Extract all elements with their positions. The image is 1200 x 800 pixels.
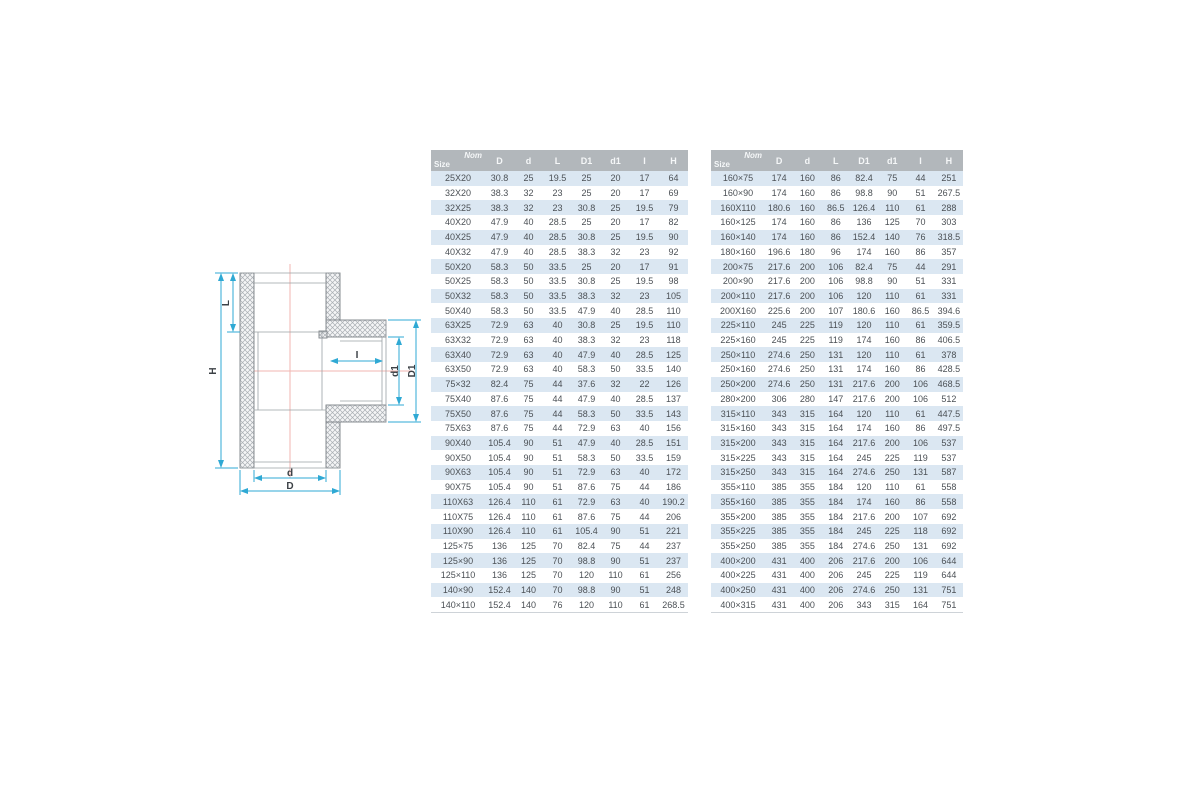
value-cell: 120 [572,597,601,612]
table-row: 250×160274.625013117416086428.5 [711,362,963,377]
value-cell: 20 [601,186,630,201]
value-cell: 245 [765,333,793,348]
value-cell: 125 [878,215,906,230]
table-row: 32X2038.3322325201769 [431,186,688,201]
value-cell: 106 [906,392,934,407]
table-row: 75X6387.6754472.96340156 [431,421,688,436]
column-header-H: H [659,150,688,171]
value-cell: 250 [878,465,906,480]
value-cell: 58.3 [485,274,514,289]
value-cell: 87.6 [485,421,514,436]
dimension-table-left: NomSizeDdLD1d1IH25X2030.82519.5252017643… [431,150,688,613]
table-row: 180×160196.61809617416086357 [711,245,963,260]
value-cell: 140 [514,597,543,612]
value-cell: 200 [878,377,906,392]
value-cell: 174 [850,494,878,509]
value-cell: 51 [906,186,934,201]
value-cell: 400 [793,597,821,612]
value-cell: 118 [659,333,688,348]
value-cell: 160 [793,215,821,230]
value-cell: 61 [630,597,659,612]
table-row: 315×16034331516417416086497.5 [711,421,963,436]
value-cell: 92 [659,245,688,260]
value-cell: 105.4 [572,524,601,539]
table-row: 355×200385355184217.6200107692 [711,509,963,524]
value-cell: 61 [906,289,934,304]
value-cell: 131 [906,583,934,598]
value-cell: 61 [543,509,572,524]
value-cell: 164 [822,450,850,465]
value-cell: 75 [878,171,906,186]
corner-label-nom: Nom [464,151,482,160]
value-cell: 160 [878,494,906,509]
value-cell: 200 [793,303,821,318]
value-cell: 221 [659,524,688,539]
value-cell: 315 [793,406,821,421]
value-cell: 160 [878,245,906,260]
value-cell: 90 [878,274,906,289]
value-cell: 692 [935,524,963,539]
value-cell: 497.5 [935,421,963,436]
value-cell: 267.5 [935,186,963,201]
size-cell: 200X160 [711,303,765,318]
table-row: 75×3282.4754437.63222126 [431,377,688,392]
value-cell: 174 [765,186,793,201]
value-cell: 98.8 [850,186,878,201]
value-cell: 51 [543,480,572,495]
value-cell: 51 [543,450,572,465]
value-cell: 245 [850,568,878,583]
table-row: 90X75105.4905187.67544186 [431,480,688,495]
value-cell: 120 [850,289,878,304]
value-cell: 186 [659,480,688,495]
value-cell: 217.6 [850,436,878,451]
size-cell: 110X90 [431,524,485,539]
value-cell: 274.6 [850,583,878,598]
table-row: 125×901361257098.89051237 [431,553,688,568]
value-cell: 38.3 [572,289,601,304]
table-row: 40X2047.94028.525201782 [431,215,688,230]
size-cell: 125×90 [431,553,485,568]
value-cell: 51 [543,465,572,480]
value-cell: 69 [659,186,688,201]
table-row: 110X63126.41106172.96340190.2 [431,494,688,509]
value-cell: 110 [878,347,906,362]
value-cell: 30.8 [572,230,601,245]
value-cell: 19.5 [630,318,659,333]
value-cell: 131 [906,465,934,480]
value-cell: 19.5 [630,200,659,215]
value-cell: 25 [514,171,543,186]
value-cell: 315 [793,450,821,465]
value-cell: 217.6 [850,377,878,392]
value-cell: 51 [630,524,659,539]
value-cell: 63 [601,421,630,436]
value-cell: 40 [514,245,543,260]
value-cell: 40 [630,494,659,509]
table-row: 25X2030.82519.525201764 [431,171,688,186]
value-cell: 357 [935,245,963,260]
value-cell: 315 [793,421,821,436]
value-cell: 184 [822,494,850,509]
dimension-table-right: NomSizeDdLD1d1IH160×751741608682.4754425… [711,150,963,613]
tee-fitting-drawing: H L D d I d1 D1 [198,256,436,508]
size-cell: 400×225 [711,568,765,583]
value-cell: 106 [822,259,850,274]
value-cell: 558 [935,494,963,509]
branch-wall-top [326,320,386,337]
value-cell: 40 [630,465,659,480]
value-cell: 44 [543,392,572,407]
value-cell: 44 [906,171,934,186]
value-cell: 28.5 [630,436,659,451]
value-cell: 184 [822,539,850,554]
value-cell: 33.5 [543,274,572,289]
value-cell: 692 [935,539,963,554]
value-cell: 75 [514,421,543,436]
column-header-H: H [935,150,963,171]
table-row: 315×11034331516412011061447.5 [711,406,963,421]
value-cell: 355 [793,480,821,495]
value-cell: 110 [878,480,906,495]
value-cell: 90 [659,230,688,245]
size-cell: 160×140 [711,230,765,245]
value-cell: 72.9 [485,318,514,333]
value-cell: 110 [878,200,906,215]
value-cell: 558 [935,480,963,495]
value-cell: 131 [906,539,934,554]
value-cell: 174 [850,421,878,436]
value-cell: 537 [935,436,963,451]
value-cell: 76 [906,230,934,245]
value-cell: 250 [878,583,906,598]
value-cell: 159 [659,450,688,465]
value-cell: 125 [514,568,543,583]
value-cell: 180.6 [765,200,793,215]
table-row: 75X5087.6754458.35033.5143 [431,406,688,421]
value-cell: 400 [793,568,821,583]
table-row: 140×110152.41407612011061268.5 [431,597,688,612]
value-cell: 47.9 [485,215,514,230]
value-cell: 250 [793,377,821,392]
value-cell: 51 [906,274,934,289]
value-cell: 32 [601,377,630,392]
value-cell: 225 [793,333,821,348]
table-row: 225×16024522511917416086406.5 [711,333,963,348]
size-cell: 355×200 [711,509,765,524]
value-cell: 75 [601,480,630,495]
value-cell: 86 [822,171,850,186]
value-cell: 40 [514,215,543,230]
value-cell: 75 [601,509,630,524]
value-cell: 160 [878,333,906,348]
value-cell: 120 [850,318,878,333]
value-cell: 315 [878,597,906,612]
value-cell: 40 [601,303,630,318]
value-cell: 70 [543,539,572,554]
table-row: 355×250385355184274.6250131692 [711,539,963,554]
value-cell: 120 [850,406,878,421]
value-cell: 250 [878,539,906,554]
value-cell: 87.6 [572,509,601,524]
value-cell: 106 [906,436,934,451]
value-cell: 63 [514,318,543,333]
value-cell: 75 [514,406,543,421]
value-cell: 131 [822,347,850,362]
value-cell: 40 [543,362,572,377]
value-cell: 136 [485,553,514,568]
value-cell: 394.6 [935,303,963,318]
value-cell: 119 [822,318,850,333]
value-cell: 28.5 [630,392,659,407]
value-cell: 217.6 [850,392,878,407]
value-cell: 90 [514,436,543,451]
value-cell: 105 [659,289,688,304]
value-cell: 90 [601,583,630,598]
value-cell: 343 [765,436,793,451]
size-cell: 315×225 [711,450,765,465]
size-cell: 160×75 [711,171,765,186]
value-cell: 105.4 [485,450,514,465]
value-cell: 75 [514,392,543,407]
table-row: 225×11024522511912011061359.5 [711,318,963,333]
size-cell: 180×160 [711,245,765,260]
value-cell: 256 [659,568,688,583]
size-cell: 160×125 [711,215,765,230]
value-cell: 110 [514,524,543,539]
size-cell: 355×110 [711,480,765,495]
size-nom-corner-cell: NomSize [711,150,765,171]
value-cell: 200 [878,436,906,451]
value-cell: 30.8 [572,318,601,333]
value-cell: 225 [878,524,906,539]
value-cell: 32 [514,186,543,201]
value-cell: 58.3 [572,450,601,465]
table-row: 50X3258.35033.538.33223105 [431,289,688,304]
value-cell: 61 [906,200,934,215]
value-cell: 30.8 [485,171,514,186]
value-cell: 44 [906,259,934,274]
size-cell: 400×200 [711,553,765,568]
value-cell: 196.6 [765,245,793,260]
value-cell: 431 [765,583,793,598]
value-cell: 63 [514,333,543,348]
value-cell: 200 [793,289,821,304]
column-header-L: L [543,150,572,171]
value-cell: 174 [765,171,793,186]
value-cell: 217.6 [850,553,878,568]
value-cell: 82.4 [850,259,878,274]
value-cell: 126.4 [485,524,514,539]
value-cell: 343 [850,597,878,612]
value-cell: 90 [601,553,630,568]
value-cell: 644 [935,553,963,568]
value-cell: 206 [822,583,850,598]
value-cell: 274.6 [850,465,878,480]
value-cell: 140 [514,583,543,598]
value-cell: 431 [765,568,793,583]
value-cell: 190.2 [659,494,688,509]
value-cell: 72.9 [485,333,514,348]
value-cell: 23 [543,200,572,215]
value-cell: 206 [822,568,850,583]
value-cell: 343 [765,406,793,421]
value-cell: 140 [659,362,688,377]
value-cell: 120 [850,347,878,362]
left-wall [240,273,254,468]
value-cell: 44 [630,480,659,495]
value-cell: 447.5 [935,406,963,421]
value-cell: 131 [822,377,850,392]
size-cell: 90X63 [431,465,485,480]
table-header-row: NomSizeDdLD1d1IH [711,150,963,171]
value-cell: 378 [935,347,963,362]
value-cell: 87.6 [485,406,514,421]
label-d1: d1 [390,365,401,377]
value-cell: 274.6 [850,539,878,554]
size-cell: 90X75 [431,480,485,495]
value-cell: 107 [906,509,934,524]
value-cell: 385 [765,480,793,495]
value-cell: 86 [822,215,850,230]
value-cell: 118 [906,524,934,539]
value-cell: 106 [822,274,850,289]
table-row: 40X2547.94028.530.82519.590 [431,230,688,245]
value-cell: 288 [935,200,963,215]
value-cell: 268.5 [659,597,688,612]
value-cell: 164 [822,465,850,480]
value-cell: 17 [630,171,659,186]
value-cell: 28.5 [630,347,659,362]
value-cell: 63 [601,494,630,509]
value-cell: 644 [935,568,963,583]
value-cell: 70 [543,583,572,598]
value-cell: 751 [935,583,963,598]
value-cell: 47.9 [572,303,601,318]
size-cell: 250×200 [711,377,765,392]
value-cell: 44 [630,509,659,524]
column-header-d: d [793,150,821,171]
value-cell: 110 [514,494,543,509]
value-cell: 87.6 [485,392,514,407]
value-cell: 280 [793,392,821,407]
value-cell: 40 [543,347,572,362]
size-cell: 315×110 [711,406,765,421]
size-cell: 315×250 [711,465,765,480]
right-wall-lower [326,422,340,468]
value-cell: 343 [765,465,793,480]
size-cell: 75X40 [431,392,485,407]
value-cell: 184 [822,509,850,524]
table-row: 400×200431400206217.6200106644 [711,553,963,568]
value-cell: 23 [543,186,572,201]
table-row: 315×225343315164245225119537 [711,450,963,465]
value-cell: 47.9 [485,230,514,245]
value-cell: 25 [572,215,601,230]
value-cell: 174 [850,245,878,260]
value-cell: 90 [601,524,630,539]
size-cell: 25X20 [431,171,485,186]
value-cell: 50 [514,259,543,274]
value-cell: 63 [514,347,543,362]
value-cell: 431 [765,553,793,568]
value-cell: 38.3 [485,200,514,215]
value-cell: 79 [659,200,688,215]
value-cell: 47.9 [485,245,514,260]
value-cell: 25 [601,230,630,245]
table-row: 160×1251741608613612570303 [711,215,963,230]
value-cell: 22 [630,377,659,392]
value-cell: 110 [659,318,688,333]
value-cell: 152.4 [485,583,514,598]
value-cell: 131 [822,362,850,377]
value-cell: 385 [765,524,793,539]
table-row: 160×751741608682.47544251 [711,171,963,186]
value-cell: 98.8 [572,553,601,568]
size-cell: 355×160 [711,494,765,509]
value-cell: 86 [906,494,934,509]
value-cell: 91 [659,259,688,274]
value-cell: 30.8 [572,200,601,215]
value-cell: 75 [601,539,630,554]
value-cell: 151 [659,436,688,451]
value-cell: 343 [765,421,793,436]
value-cell: 82.4 [572,539,601,554]
table-row: 400×250431400206274.6250131751 [711,583,963,598]
corner-label-nom: Nom [744,151,762,160]
value-cell: 32 [601,289,630,304]
value-cell: 58.3 [572,362,601,377]
value-cell: 25 [601,200,630,215]
size-cell: 32X20 [431,186,485,201]
value-cell: 315 [793,465,821,480]
value-cell: 237 [659,553,688,568]
value-cell: 105.4 [485,480,514,495]
size-cell: 200×90 [711,274,765,289]
value-cell: 86.5 [906,303,934,318]
value-cell: 110 [601,568,630,583]
value-cell: 751 [935,597,963,612]
value-cell: 40 [601,392,630,407]
value-cell: 250 [793,347,821,362]
value-cell: 184 [822,524,850,539]
value-cell: 120 [572,568,601,583]
value-cell: 126.4 [485,509,514,524]
value-cell: 90 [514,465,543,480]
value-cell: 63 [601,465,630,480]
value-cell: 25 [572,259,601,274]
size-cell: 315×160 [711,421,765,436]
value-cell: 32 [514,200,543,215]
value-cell: 164 [906,597,934,612]
value-cell: 98.8 [850,274,878,289]
value-cell: 428.5 [935,362,963,377]
value-cell: 61 [906,347,934,362]
value-cell: 86.5 [822,200,850,215]
size-cell: 50X25 [431,274,485,289]
value-cell: 385 [765,494,793,509]
value-cell: 76 [543,597,572,612]
value-cell: 90 [514,450,543,465]
corner-label-size: Size [714,160,730,169]
size-cell: 90X40 [431,436,485,451]
label-H: H [208,367,219,374]
size-cell: 63X25 [431,318,485,333]
value-cell: 51 [543,436,572,451]
value-cell: 72.9 [485,362,514,377]
column-header-I: I [630,150,659,171]
value-cell: 174 [765,215,793,230]
